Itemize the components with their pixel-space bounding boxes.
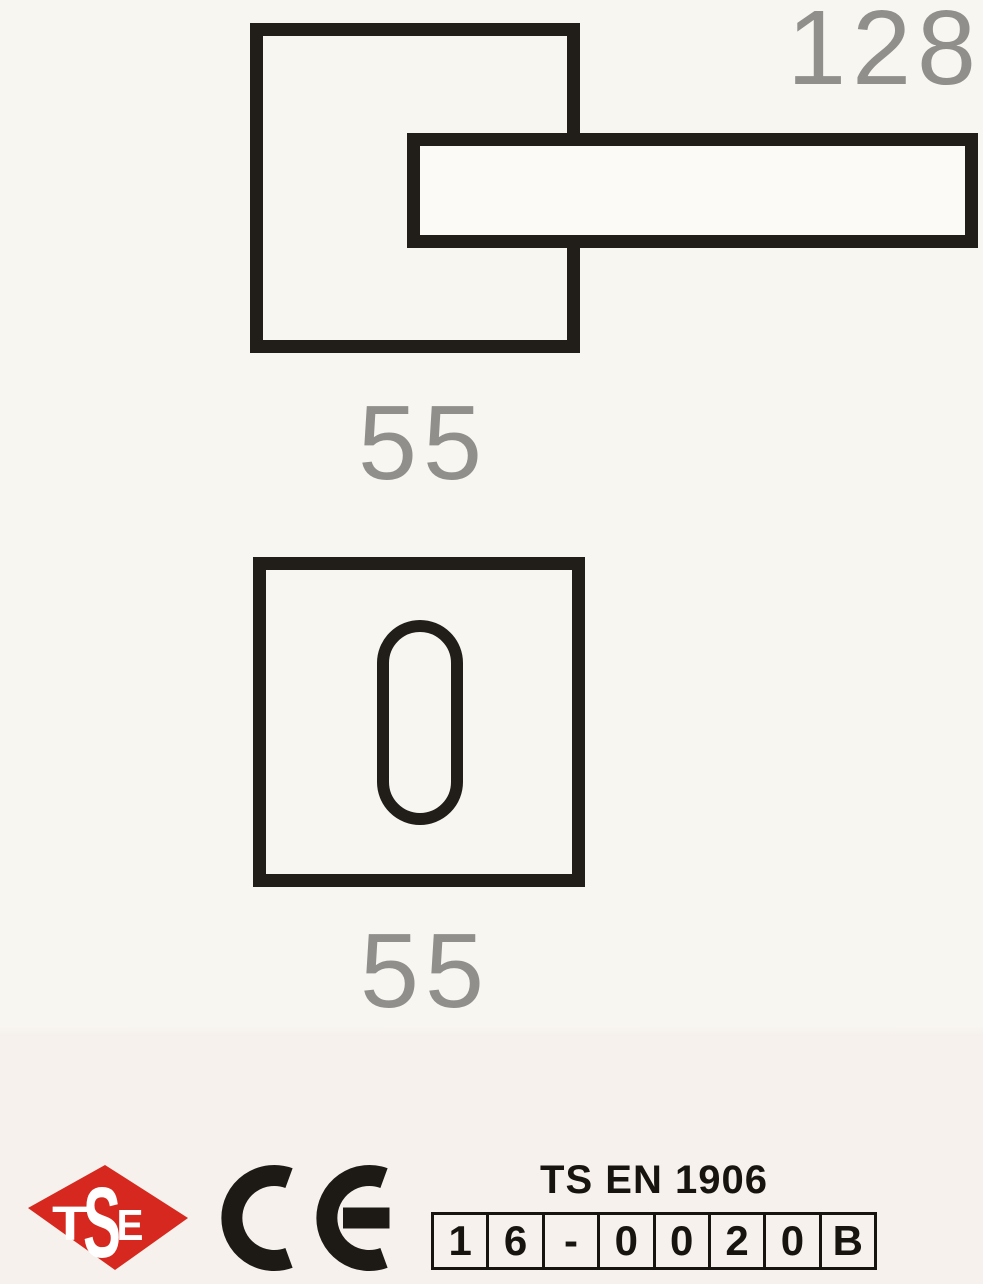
code-cell: 0 [656, 1215, 711, 1267]
code-cell: - [545, 1215, 600, 1267]
section-divider [0, 1026, 983, 1036]
code-cell: 1 [434, 1215, 489, 1267]
tse-logo-icon: T S E [18, 1158, 196, 1278]
ce-letter-c [232, 1176, 289, 1261]
door-handle-spec-sheet: 128 55 55 T S E TS EN 1906 1 6 - 0 0 2 0… [0, 0, 983, 1284]
tse-letter-e: E [117, 1201, 144, 1250]
escutcheon-width-dimension: 55 [340, 918, 510, 1024]
lever-length-dimension: 128 [722, 0, 982, 101]
rose-width-dimension: 55 [338, 390, 508, 496]
lever-handle-outline [407, 133, 978, 248]
tse-letter-s: S [83, 1167, 121, 1278]
keyhole-outline [377, 620, 463, 825]
code-cell: 6 [489, 1215, 544, 1267]
classification-code-table: 1 6 - 0 0 2 0 B [431, 1212, 877, 1270]
code-cell: B [822, 1215, 874, 1267]
ce-mark-icon [210, 1155, 405, 1280]
code-cell: 0 [766, 1215, 821, 1267]
code-cell: 2 [711, 1215, 766, 1267]
standard-title: TS EN 1906 [431, 1160, 877, 1200]
code-cell: 0 [600, 1215, 655, 1267]
